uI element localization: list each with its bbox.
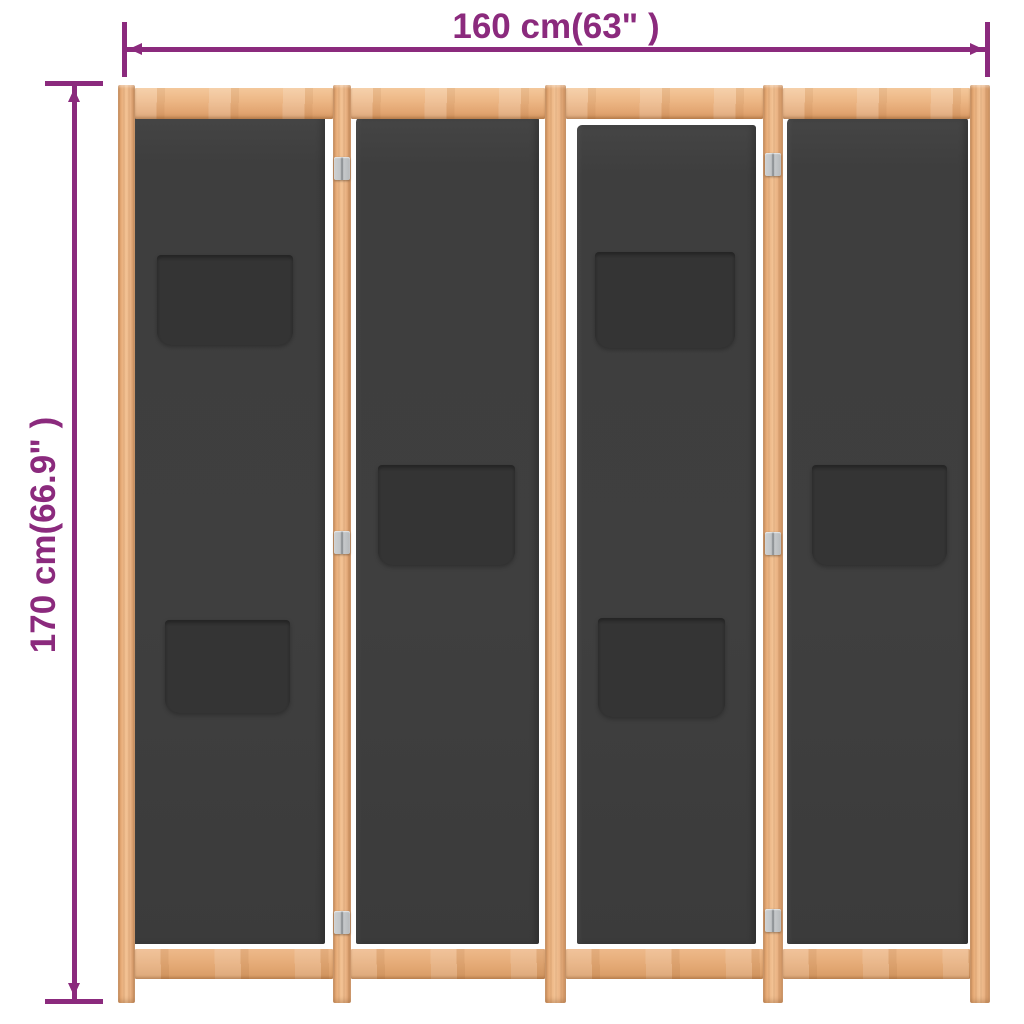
fabric-pocket	[378, 465, 515, 565]
wood-top-rail	[135, 88, 333, 119]
height-arrow-down-icon	[68, 983, 80, 996]
height-dimension-label: 170 cm(66.9" )	[24, 417, 64, 653]
fabric-pocket	[165, 620, 290, 713]
hinge	[765, 153, 781, 176]
height-dimension-line	[72, 83, 77, 1002]
fabric-pocket	[812, 465, 947, 565]
height-dimension-cap-top	[45, 81, 103, 86]
wood-top-rail	[351, 88, 545, 119]
fabric-pocket	[595, 252, 735, 348]
wood-post-outer-left	[118, 85, 135, 1003]
fabric-panel-1	[131, 114, 325, 944]
wood-top-rail	[783, 88, 970, 119]
wood-top-rail	[566, 88, 763, 119]
fabric-panel-4	[787, 118, 968, 944]
hinge	[765, 532, 781, 555]
wood-post-junction-2	[545, 85, 566, 1003]
fabric-pocket	[157, 255, 293, 345]
wood-bottom-rail	[783, 949, 970, 979]
height-dimension-cap-bottom	[45, 999, 103, 1004]
height-arrow-up-icon	[68, 89, 80, 102]
fabric-panel-3	[577, 125, 756, 944]
width-dimension-cap-right	[985, 22, 990, 77]
hinge	[334, 531, 350, 554]
width-arrow-right-icon	[970, 43, 983, 55]
width-arrow-left-icon	[129, 43, 142, 55]
hinge	[334, 157, 350, 180]
fabric-pocket	[598, 618, 725, 717]
width-dimension-label: 160 cm(63" )	[452, 7, 659, 47]
width-dimension-line	[124, 47, 988, 52]
wood-bottom-rail	[135, 949, 333, 979]
wood-bottom-rail	[351, 949, 545, 979]
wood-post-outer-right	[970, 85, 990, 1003]
fabric-panel-2	[356, 117, 539, 944]
wood-bottom-rail	[566, 949, 763, 979]
hinge	[765, 909, 781, 932]
width-dimension-cap-left	[122, 22, 127, 77]
room-divider-dimension-diagram: 160 cm(63" ) 170 cm(66.9" )	[0, 0, 1024, 1024]
hinge	[334, 911, 350, 934]
